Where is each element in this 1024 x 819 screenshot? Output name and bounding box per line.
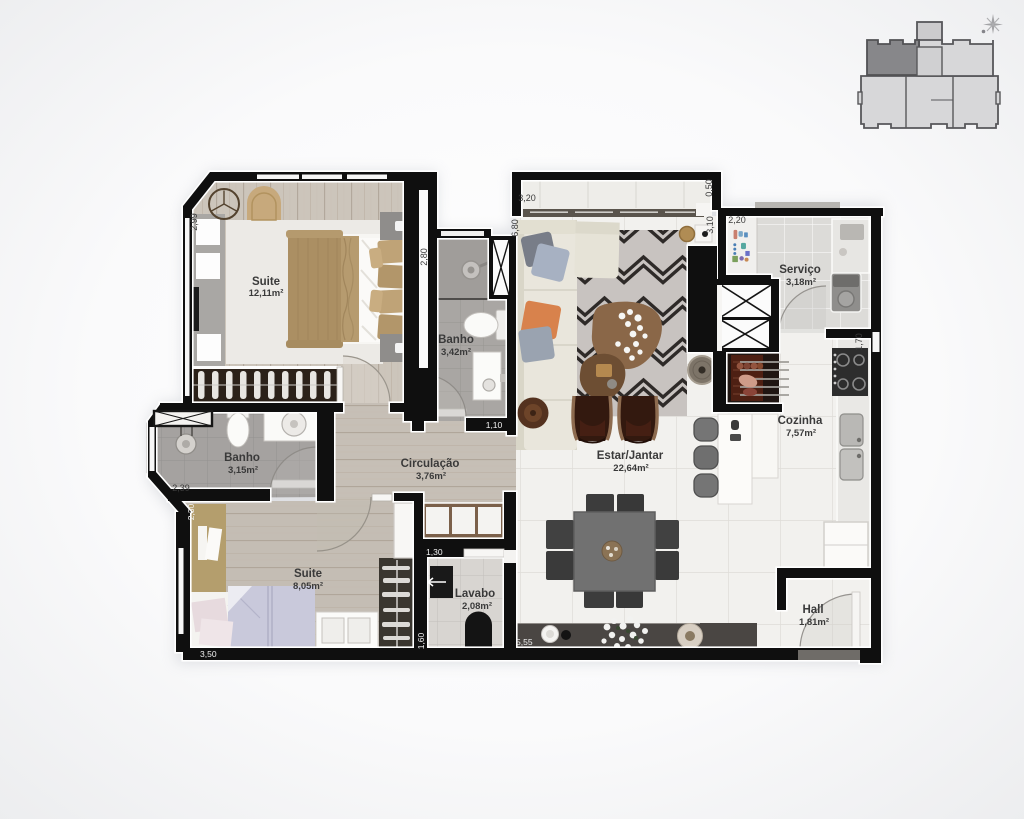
svg-text:Banho: Banho	[438, 334, 474, 346]
svg-text:1,60: 1,60	[416, 632, 426, 649]
svg-text:2,08m²: 2,08m²	[462, 601, 492, 612]
svg-text:3,18m²: 3,18m²	[786, 277, 816, 288]
svg-text:3,20: 3,20	[518, 193, 536, 203]
svg-text:2,39: 2,39	[172, 483, 190, 493]
svg-text:2,80: 2,80	[419, 248, 429, 266]
svg-text:2,99: 2,99	[189, 213, 199, 231]
svg-text:3,42m²: 3,42m²	[441, 347, 471, 358]
svg-text:8,05m²: 8,05m²	[293, 581, 323, 592]
svg-text:Banho: Banho	[224, 452, 260, 464]
svg-text:1,10: 1,10	[486, 420, 503, 430]
svg-text:Suite: Suite	[294, 568, 322, 580]
svg-text:6,80: 6,80	[510, 219, 520, 237]
svg-text:3,10: 3,10	[705, 216, 715, 234]
svg-text:Cozinha: Cozinha	[778, 415, 823, 427]
svg-text:0,50: 0,50	[704, 179, 714, 197]
svg-text:12,11m²: 12,11m²	[249, 288, 284, 299]
svg-text:Suite: Suite	[252, 276, 280, 288]
svg-text:2,30: 2,30	[186, 503, 196, 520]
svg-text:1,81m²: 1,81m²	[799, 617, 829, 628]
svg-text:Serviço: Serviço	[779, 264, 821, 276]
svg-text:3,50: 3,50	[200, 649, 217, 659]
svg-text:Hall: Hall	[802, 604, 823, 616]
svg-text:1,30: 1,30	[426, 547, 443, 557]
svg-text:5,55: 5,55	[516, 637, 533, 647]
svg-text:1,70: 1,70	[854, 333, 864, 351]
svg-text:22,64m²: 22,64m²	[613, 463, 648, 474]
svg-text:Lavabo: Lavabo	[455, 588, 495, 600]
svg-text:3,76m²: 3,76m²	[416, 471, 446, 482]
svg-text:Circulação: Circulação	[401, 458, 460, 470]
svg-text:7,57m²: 7,57m²	[786, 428, 816, 439]
svg-text:Estar/Jantar: Estar/Jantar	[597, 450, 664, 462]
svg-text:2,20: 2,20	[728, 215, 746, 225]
svg-text:3,15m²: 3,15m²	[228, 465, 258, 476]
